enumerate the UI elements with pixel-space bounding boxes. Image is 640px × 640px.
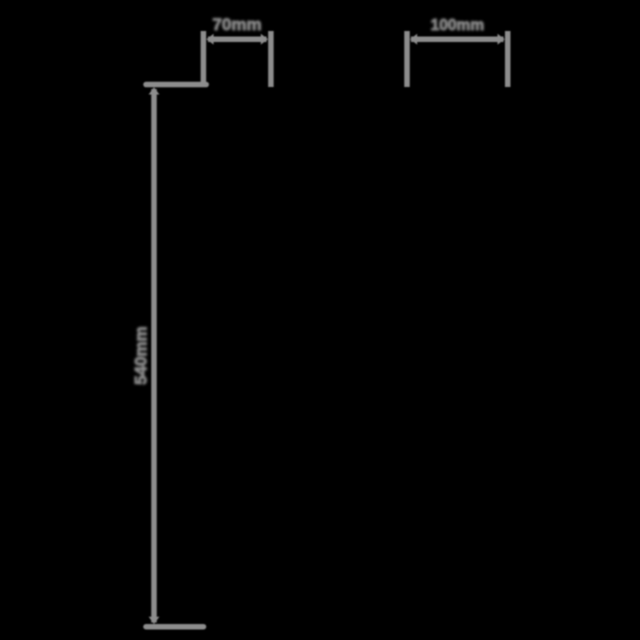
svg-text:540mm: 540mm: [132, 326, 151, 385]
svg-text:70mm: 70mm: [212, 15, 261, 34]
svg-text:100mm: 100mm: [431, 17, 484, 34]
